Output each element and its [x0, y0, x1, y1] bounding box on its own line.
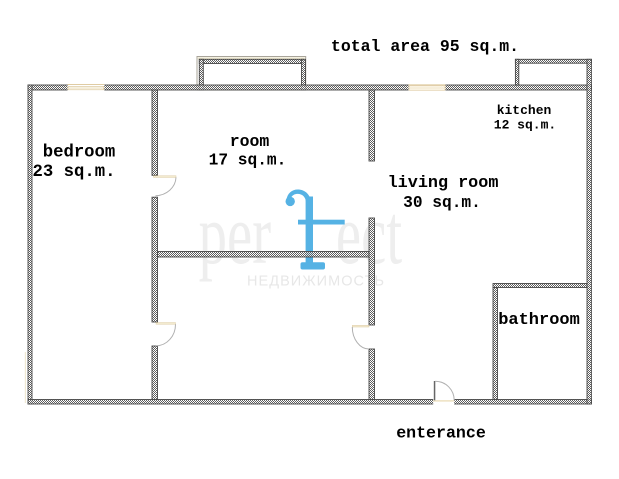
svg-text:НЕДВИЖИМОСТЬ: НЕДВИЖИМОСТЬ	[247, 274, 384, 290]
svg-text:per: per	[199, 186, 271, 282]
svg-text:room: room	[230, 132, 270, 151]
svg-text:kitchen: kitchen	[497, 103, 552, 118]
svg-text:bedroom: bedroom	[43, 144, 116, 163]
svg-text:enterance: enterance	[396, 424, 486, 443]
svg-text:30 sq.m.: 30 sq.m.	[403, 194, 481, 212]
svg-text:23 sq.m.: 23 sq.m.	[33, 163, 116, 182]
svg-text:total area 95 sq.m.: total area 95 sq.m.	[331, 37, 519, 56]
svg-text:17 sq.m.: 17 sq.m.	[209, 152, 287, 170]
svg-text:living room: living room	[388, 174, 499, 193]
svg-text:12 sq.m.: 12 sq.m.	[494, 118, 556, 133]
svg-text:bathroom: bathroom	[498, 311, 580, 330]
